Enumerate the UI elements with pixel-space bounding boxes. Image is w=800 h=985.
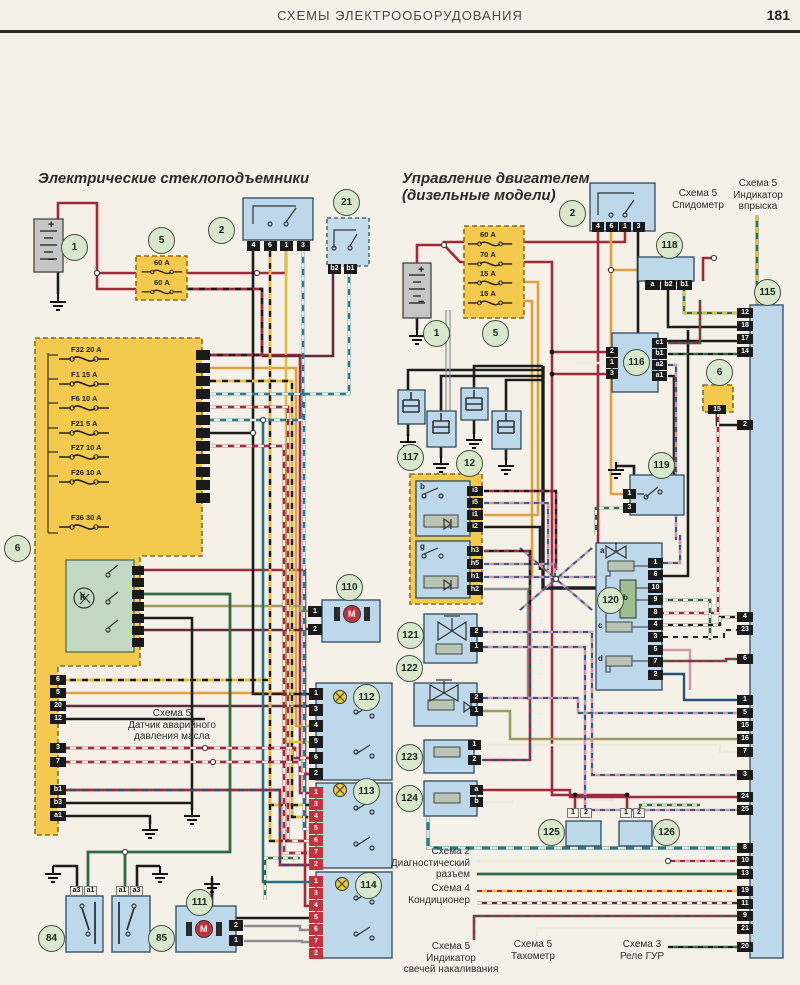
battery-left-plus: + <box>48 219 54 231</box>
terminal: 4 <box>247 241 260 251</box>
terminal: i3 <box>467 486 483 496</box>
fuse-row: 60 А <box>141 258 183 278</box>
badge-115: 115 <box>754 279 781 306</box>
module-b-pins: i3i5i1i2 <box>467 486 483 532</box>
terminal: 6 <box>309 752 323 764</box>
comp116-pins-right: c1b1a2a1 <box>652 338 667 381</box>
module-b-label: b <box>420 482 425 491</box>
terminal: 5 <box>309 736 323 748</box>
terminal: 1 <box>606 358 618 368</box>
terminal: 2 <box>606 347 618 357</box>
terminal: 6 <box>737 654 753 664</box>
fuse-row: 70 А <box>467 250 513 270</box>
terminal: b1 <box>677 280 692 290</box>
terminal: 1 <box>567 808 579 818</box>
terminal: 1 <box>648 558 663 568</box>
terminal: 21 <box>737 924 753 934</box>
comp113-pins: 1345672 <box>309 787 323 870</box>
fuse-row: F21 5 A <box>58 419 110 444</box>
wires-yellow <box>286 251 310 742</box>
terminal: 3 <box>297 241 310 251</box>
terminal: 7 <box>309 847 323 858</box>
terminal: 4 <box>592 222 604 232</box>
terminal: 1 <box>309 787 323 798</box>
terminal: 8 <box>737 843 753 853</box>
badge-fusebox-left: 6 <box>4 535 31 562</box>
fusebox-pins-b: 37 <box>50 743 66 767</box>
terminal: 1 <box>470 706 483 716</box>
terminal: a3 <box>130 886 143 896</box>
terminal: 3 <box>648 632 663 642</box>
comp114-pins: 1345672 <box>309 876 323 959</box>
fuse-block-left-fuses: 60 А60 А <box>141 258 183 297</box>
terminal: 2 <box>468 755 481 765</box>
fuse-row: F6 10 A <box>58 394 110 419</box>
comp85-pins: a1a3 <box>116 886 143 896</box>
battery-right-minus: − <box>418 296 424 308</box>
badge-relay-right: 2 <box>559 200 586 227</box>
note-injection: Схема 5 Индикатор впрыска <box>722 178 794 213</box>
terminal: 4 <box>309 720 323 732</box>
terminal: 3 <box>309 888 323 899</box>
terminal: 1 <box>309 876 323 887</box>
badge-120: 120 <box>597 587 624 614</box>
comp115-pins-g11: 20 <box>737 942 753 952</box>
comp126-box <box>619 821 652 846</box>
module-g-label: g <box>420 542 425 551</box>
comp118-box <box>638 257 694 281</box>
terminal: 2 <box>470 627 483 637</box>
badge-84: 84 <box>38 925 65 952</box>
comp85-box <box>112 896 150 952</box>
comp125-pins: 12 <box>567 808 592 818</box>
badge-fuseblock-left: 5 <box>148 227 175 254</box>
terminal: 2 <box>580 808 592 818</box>
comp112-pins: 134562 <box>309 688 323 780</box>
terminal: 24 <box>737 792 753 802</box>
fuse-row: 60 А <box>467 230 513 250</box>
terminal: 18 <box>737 321 753 331</box>
comp125-box <box>566 821 601 846</box>
comp119-box <box>630 475 684 515</box>
resistor <box>434 793 460 803</box>
terminal: 10 <box>737 856 753 866</box>
terminal: a <box>645 280 660 290</box>
fusebox-fuse36: F36 30 A <box>58 513 110 531</box>
terminal: 16 <box>737 734 753 744</box>
header-rule <box>0 30 800 33</box>
terminal: b1 <box>50 785 66 795</box>
badge-125: 125 <box>538 819 565 846</box>
terminal: 7 <box>50 757 66 767</box>
note-diagnostic: Схема 2 Диагностический разъем <box>370 846 470 881</box>
comp115-pins-g8: 81013 <box>737 843 753 879</box>
resistor <box>606 656 632 666</box>
terminal: c1 <box>652 338 667 348</box>
comp121-pins: 21 <box>470 627 483 652</box>
comp115-box <box>750 305 783 958</box>
terminal: 5 <box>309 823 323 834</box>
terminal: 25 <box>737 805 753 815</box>
resistor <box>424 576 458 588</box>
relay-left-pins: 4613 <box>247 241 310 251</box>
badge-119: 119 <box>648 452 675 479</box>
badge-battery-right: 1 <box>423 320 450 347</box>
comp120-label-d: d <box>598 654 603 663</box>
terminal: 1 <box>308 606 322 617</box>
terminal: 4 <box>737 612 753 622</box>
comp120-pins: 16109843572 <box>648 558 663 680</box>
terminal: 3 <box>633 222 645 232</box>
terminal: a1 <box>84 886 97 896</box>
terminal: 6 <box>606 222 618 232</box>
terminal: 7 <box>648 657 663 667</box>
motor-110-label: М <box>348 609 356 619</box>
terminal: 3 <box>606 369 618 379</box>
terminal: 1 <box>309 688 323 700</box>
terminal: 6 <box>264 241 277 251</box>
terminal: 20 <box>737 942 753 952</box>
terminal: 1 <box>619 222 631 232</box>
badge-124: 124 <box>396 785 423 812</box>
comp115-pins-g6: 3 <box>737 770 753 780</box>
note-oil-sensor: Схема 5 Датчик аварийного давления масла <box>118 708 226 743</box>
terminal: 9 <box>737 911 753 921</box>
wires-pink <box>663 650 690 690</box>
fusebox-fuses: F32 20 AF1 15 AF6 10 AF21 5 AF27 10 AF26… <box>58 345 110 492</box>
resistor <box>608 561 634 571</box>
comp21-box <box>327 218 369 266</box>
terminal: b2 <box>661 280 676 290</box>
terminal: 2 <box>737 420 753 430</box>
battery-left-minus: − <box>48 254 54 266</box>
wiring-layer <box>0 0 800 985</box>
terminal: a1 <box>652 371 667 381</box>
comp115-pins-g7: 2425 <box>737 792 753 815</box>
comp126-pins: 12 <box>620 808 645 818</box>
terminal: b <box>470 797 483 807</box>
terminal: 6 <box>648 570 663 580</box>
fuse-row: F1 15 A <box>58 370 110 395</box>
right-diagram-title: Управление двигателем (дизельные модели) <box>402 170 590 204</box>
terminal: h2 <box>467 585 483 595</box>
badge-battery-left: 1 <box>61 234 88 261</box>
comp84-box <box>66 896 103 952</box>
terminal: b1 <box>652 349 667 359</box>
badge-6-right: 6 <box>706 359 733 386</box>
badge-113: 113 <box>353 778 380 805</box>
comp118-pins: ab2b1 <box>645 280 692 290</box>
terminal: 6 <box>309 924 323 935</box>
resistor <box>428 700 454 710</box>
terminal: 5 <box>309 912 323 923</box>
fuse-row: F27 10 A <box>58 443 110 468</box>
wires-blue <box>663 674 738 700</box>
terminal: 20 <box>50 701 66 711</box>
fusebox-relay-box <box>66 560 134 652</box>
comp111-pins: 21 <box>229 920 243 946</box>
terminal: 1 <box>620 808 632 818</box>
terminal: 7 <box>737 747 753 757</box>
terminal: 17 <box>737 334 753 344</box>
terminal: 2 <box>308 624 322 635</box>
terminal: 1 <box>470 642 483 652</box>
badge-85: 85 <box>148 925 175 952</box>
terminal: i1 <box>467 510 483 520</box>
terminal: a2 <box>652 360 667 370</box>
comp115-pins-g5: 1515167 <box>737 695 753 757</box>
terminal: 1 <box>229 935 243 946</box>
note-tachometer: Схема 5 Тахометр <box>498 939 568 962</box>
terminal: i2 <box>467 522 483 532</box>
terminal: h3 <box>467 546 483 556</box>
page-number: 181 <box>740 7 790 23</box>
terminal: i5 <box>467 498 483 508</box>
fuse-block-right-fuses: 60 А70 А15 А15 А <box>467 230 513 308</box>
terminal: 3 <box>309 799 323 810</box>
comp115-pins-g9: 1911 <box>737 886 753 909</box>
terminal: a1 <box>116 886 129 896</box>
relay-right-pins: 4613 <box>592 222 645 232</box>
terminal: 4 <box>309 900 323 911</box>
terminal: 23 <box>737 625 753 635</box>
terminal: 4 <box>309 811 323 822</box>
comp120-label-b: b <box>623 593 628 602</box>
terminal: 6 <box>309 835 323 846</box>
motor-111-label: М <box>200 924 208 934</box>
fusebox-pins-c: b1b3a1 <box>50 785 66 821</box>
comp120-label-a: a <box>600 546 604 555</box>
terminal: 3 <box>50 743 66 753</box>
terminal: 2 <box>309 948 323 959</box>
comp124-pins: ab <box>470 785 483 807</box>
terminal: 12 <box>737 308 753 318</box>
comp122-pins: 21 <box>470 693 483 716</box>
manual-page: СХЕМЫ ЭЛЕКТРООБОРУДОВАНИЯ 181 Электричес… <box>0 0 800 985</box>
terminal: 4 <box>648 620 663 630</box>
terminal: 11 <box>737 899 753 909</box>
note-gur-relay: Схема 3 Реле ГУР <box>607 939 677 962</box>
terminal: 1 <box>280 241 293 251</box>
comp115-pins-g2: 2 <box>737 420 753 430</box>
badge-fuseblock-right: 5 <box>482 320 509 347</box>
page-header: СХЕМЫ ЭЛЕКТРООБОРУДОВАНИЯ <box>0 8 800 23</box>
fuse-row: 15 А <box>467 269 513 289</box>
battery-right-box <box>403 263 431 318</box>
terminal: 3 <box>309 704 323 716</box>
comp115-pins-g1: 12181714 <box>737 308 753 357</box>
terminal: h5 <box>467 559 483 569</box>
terminal: 19 <box>737 886 753 896</box>
terminal: a <box>470 785 483 795</box>
terminal: 1 <box>623 489 636 499</box>
terminal: 5 <box>648 645 663 655</box>
comp110-pins: 12 <box>308 606 322 635</box>
battery-right-plus: + <box>418 264 424 276</box>
comp115-pins-g4: 6 <box>737 654 753 664</box>
terminal: b2 <box>328 264 341 274</box>
badge-relay-left: 2 <box>208 217 235 244</box>
fuse-row: F32 20 A <box>58 345 110 370</box>
terminal: 1 <box>737 695 753 705</box>
fuse-row: 15 А <box>467 289 513 309</box>
terminal: 2 <box>648 670 663 680</box>
terminal: 6 <box>50 675 66 685</box>
badge-126: 126 <box>653 819 680 846</box>
resistor <box>434 747 460 757</box>
badge-21: 21 <box>333 189 360 216</box>
terminal: a3 <box>70 886 83 896</box>
terminal: 10 <box>648 583 663 593</box>
terminal: 15 <box>737 721 753 731</box>
comp6-pin: 15 <box>708 405 726 414</box>
badge-123: 123 <box>396 744 423 771</box>
terminal: 8 <box>648 608 663 618</box>
badge-111: 111 <box>186 889 213 916</box>
terminal: 2 <box>309 768 323 780</box>
terminal: 3 <box>737 770 753 780</box>
note-glow-indicator: Схема 5 Индикатор свечей накаливания <box>395 941 507 976</box>
terminal: 5 <box>737 708 753 718</box>
fusebox-relay-label: К <box>80 592 86 602</box>
resistor <box>606 622 632 632</box>
comp115-pins-g3: 423 <box>737 612 753 635</box>
terminal: 3 <box>623 503 636 513</box>
terminal: 13 <box>737 869 753 879</box>
comp123-pins: 12 <box>468 740 481 765</box>
fuse-row: F26 10 A <box>58 468 110 493</box>
terminal: 5 <box>50 688 66 698</box>
terminal: 2 <box>229 920 243 931</box>
terminal: 1 <box>468 740 481 750</box>
terminal: b3 <box>50 798 66 808</box>
comp116-pins-left: 213 <box>606 347 618 379</box>
comp119-pins: 13 <box>623 489 636 513</box>
badge-12: 12 <box>456 450 483 477</box>
comp21-pins: b2b1 <box>328 264 357 274</box>
resistor <box>436 644 462 654</box>
terminal: 9 <box>648 595 663 605</box>
badge-118: 118 <box>656 232 683 259</box>
resistor <box>424 515 458 527</box>
badge-121: 121 <box>397 622 424 649</box>
terminal: 14 <box>737 347 753 357</box>
comp115-pins-g10: 921 <box>737 911 753 934</box>
terminal: 7 <box>309 936 323 947</box>
terminal: h1 <box>467 572 483 582</box>
fuse-row: 60 А <box>141 278 183 298</box>
module-g-pins: h3h5h1h2 <box>467 546 483 595</box>
left-diagram-title: Электрические стеклоподъемники <box>38 170 309 187</box>
terminal: 2 <box>633 808 645 818</box>
badge-116: 116 <box>623 349 650 376</box>
terminal: a1 <box>50 811 66 821</box>
note-ac: Схема 4 Кондиционер <box>370 883 470 906</box>
badge-122: 122 <box>396 655 423 682</box>
badge-110: 110 <box>336 574 363 601</box>
badge-112: 112 <box>353 684 380 711</box>
terminal: b1 <box>344 264 357 274</box>
comp84-pins: a3a1 <box>70 886 97 896</box>
terminal: 12 <box>50 714 66 724</box>
badge-117: 117 <box>397 444 424 471</box>
terminal: 2 <box>309 859 323 870</box>
comp120-label-c: c <box>598 621 602 630</box>
terminal: 2 <box>470 693 483 703</box>
fusebox-pins-a: 652012 <box>50 675 66 724</box>
